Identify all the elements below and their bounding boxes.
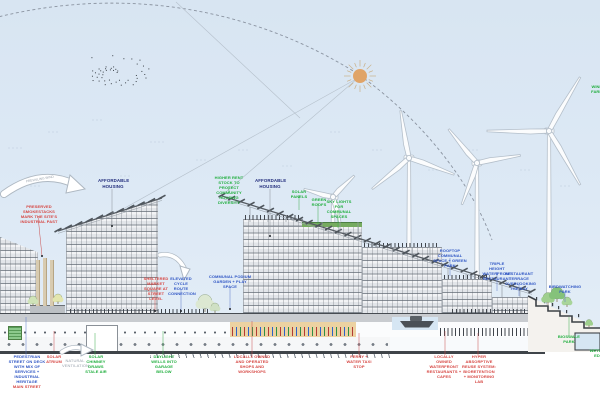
label-market-square: SHELTERED MARKET SQUARE AT STREET LEVEL: [143, 276, 169, 301]
label-affordable-housing: AFFORDABLE HOUSING: [98, 178, 128, 189]
person-icon: [578, 314, 579, 317]
person-icon: [566, 310, 567, 313]
label-smokestacks: PRESERVED SMOKESTACKS MARK THE SITE'S IN…: [20, 204, 58, 224]
label-skylights: SKY LIGHTS FOR COMMUNAL SPACES: [325, 199, 353, 219]
label-affordable-housing: AFFORDABLE HOUSING: [255, 178, 285, 189]
leader-dot: [41, 255, 43, 257]
label-daylight-wells: DAYLIGHT WELLS INTO GARAGE BELOW: [150, 354, 178, 374]
label-ferry-stop: FERRY + WATER TAXI STOP: [344, 354, 374, 369]
label-higher-rent: HIGHER RENT STOCK TO PROTECT COMMUNITY H…: [208, 175, 250, 205]
section-diagram: PREVAILING WIND PRESERVED SMOKESTACKS MA…: [0, 0, 600, 400]
label-pedestrian-street-text: PEDESTRIAN STREET ON DECK WITH MIX OF SE…: [9, 354, 46, 384]
person-icon: [536, 297, 537, 300]
label-birdwatching-park: BIRDWATCHING PARK: [548, 284, 582, 294]
label-main-street: MAIN STREET: [6, 384, 48, 389]
label-cycle-route: ELEVATED CYCLE ROUTE CONNECTION: [168, 276, 194, 296]
label-restaurant-terrace: RESTAURANT TERRACE OVERLOOKING THE BAY: [505, 271, 533, 291]
leader-dot: [111, 225, 113, 227]
tree-icon: [53, 294, 64, 304]
label-podium-garden: COMMUNAL PODIUM GARDEN + PLAY SPACE: [208, 274, 252, 289]
leader-dot: [154, 310, 156, 312]
leader-dot: [269, 235, 271, 237]
solar-canopy: [55, 195, 166, 233]
label-local-shops: LOCALLY OWNED AND OPERATED SHOPS AND WOR…: [232, 354, 272, 374]
foreground-elements: PREVAILING WIND: [0, 0, 600, 400]
label-stack-vent: SOLAR CHIMNEY DRAWS STALE AIR: [84, 354, 108, 374]
label-wind-farm: WIND FARM: [586, 84, 600, 94]
leader-dot: [229, 308, 231, 310]
tree-icon: [28, 296, 39, 306]
person-icon: [552, 303, 553, 306]
person-icon: [558, 306, 559, 309]
leader-dot: [180, 310, 182, 312]
label-waterfront-restaurants: LOCALLY OWNED WATERFRONT RESTAURANTS + C…: [426, 354, 462, 379]
label-bioswale-park: BIOSWALE PARK: [552, 334, 586, 344]
boat-icon: [400, 316, 434, 328]
prevailing-wind-arrow: PREVAILING WIND: [4, 174, 85, 194]
label-water-system: HYPER ABSORPTIVE REUSE SYSTEM: BIORETENT…: [462, 354, 496, 384]
label-wetland-edge: WETLAND EDGE: [588, 348, 600, 358]
label-rooftop-communal: ROOFTOP COMMUNAL SPACE + GREEN PARK: [432, 248, 468, 268]
